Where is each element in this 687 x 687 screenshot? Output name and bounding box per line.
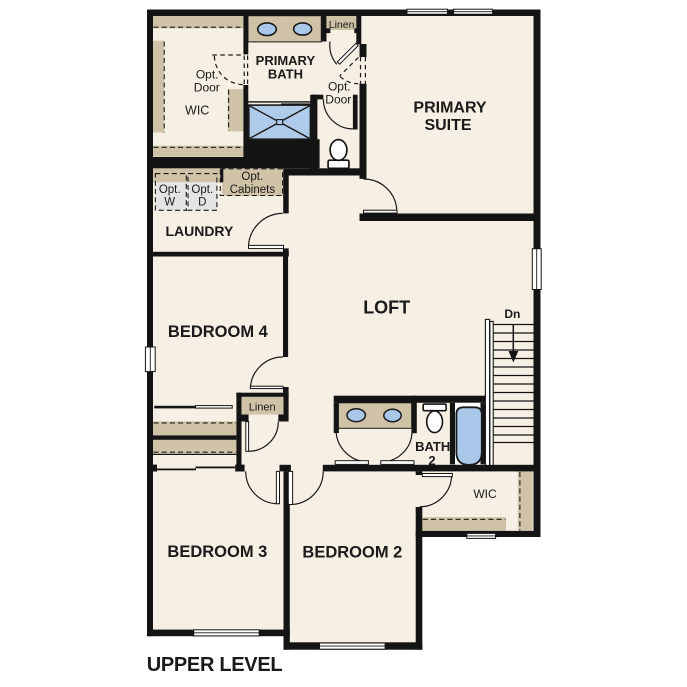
- svg-text:Cabinets: Cabinets: [230, 184, 276, 196]
- svg-text:BATH: BATH: [268, 67, 303, 82]
- svg-text:BEDROOM 3: BEDROOM 3: [167, 543, 267, 561]
- svg-text:UPPER LEVEL: UPPER LEVEL: [147, 654, 283, 676]
- svg-text:WIC: WIC: [473, 487, 497, 501]
- svg-text:Opt.: Opt.: [328, 80, 351, 94]
- svg-text:LOFT: LOFT: [363, 298, 410, 318]
- svg-text:PRIMARY: PRIMARY: [413, 100, 487, 117]
- svg-text:Opt.: Opt.: [241, 171, 263, 183]
- svg-text:Door: Door: [194, 80, 220, 94]
- svg-text:BEDROOM 2: BEDROOM 2: [302, 544, 402, 562]
- svg-text:SUITE: SUITE: [424, 117, 471, 134]
- svg-text:W: W: [164, 196, 175, 208]
- svg-text:D: D: [198, 196, 206, 208]
- svg-text:Opt.: Opt.: [159, 184, 181, 196]
- svg-text:LAUNDRY: LAUNDRY: [165, 223, 234, 239]
- svg-text:Opt.: Opt.: [191, 184, 213, 196]
- svg-text:Linen: Linen: [249, 401, 276, 413]
- svg-text:WIC: WIC: [185, 104, 209, 118]
- svg-text:Dn: Dn: [504, 307, 520, 321]
- svg-text:Door: Door: [325, 93, 351, 107]
- svg-text:Linen: Linen: [329, 19, 355, 31]
- svg-text:BEDROOM 4: BEDROOM 4: [168, 323, 269, 341]
- svg-text:BATH: BATH: [415, 439, 450, 454]
- svg-text:2: 2: [428, 453, 435, 468]
